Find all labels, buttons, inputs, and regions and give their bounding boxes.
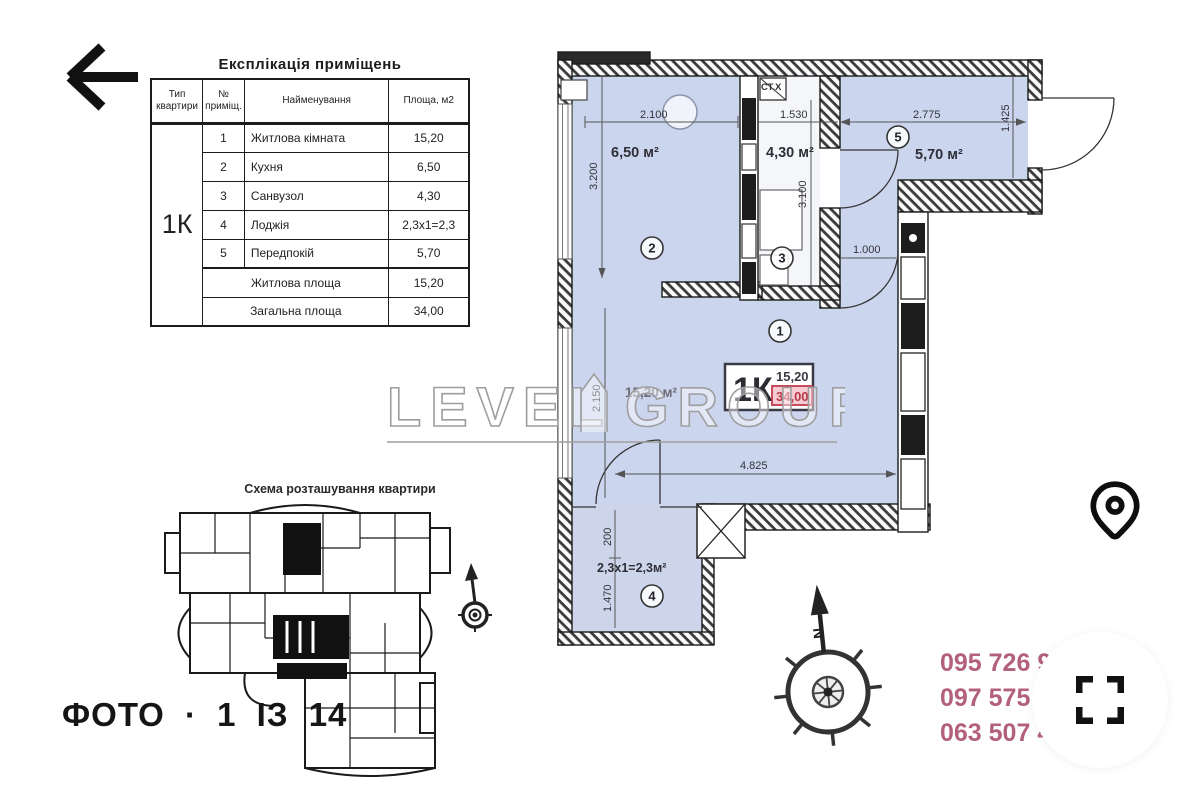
room-number-3: 3 xyxy=(778,251,785,266)
location-button[interactable] xyxy=(1058,453,1172,567)
ceiling-symbol xyxy=(663,95,697,129)
room-number-2: 2 xyxy=(648,241,655,256)
col-header-name: Найменування xyxy=(244,79,389,123)
dim-3100: 3.100 xyxy=(797,180,809,208)
back-button[interactable] xyxy=(52,36,144,118)
highlighted-unit xyxy=(273,523,349,679)
explication-table: Експлікація приміщень Тип квартири № при… xyxy=(150,56,470,327)
vent-shaft xyxy=(697,504,745,558)
north-label: N xyxy=(810,627,828,640)
table-title: Експлікація приміщень xyxy=(150,56,470,73)
col-header-type: Тип квартири xyxy=(151,79,203,123)
room-2-area: 6,50 м² xyxy=(611,145,659,161)
room-number-5: 5 xyxy=(894,130,901,145)
building-scheme xyxy=(155,503,525,783)
mini-compass-icon xyxy=(458,563,492,632)
room-4-area: 2,3х1=2,3м² xyxy=(597,561,666,575)
table-row: 1К 1 Житлова кімната 15,20 xyxy=(151,123,469,152)
dim-1425: 1.425 xyxy=(1000,104,1012,132)
apartment-stamp: 1К 15,20 34,00 xyxy=(725,364,813,410)
dim-3200: 3.200 xyxy=(588,162,600,190)
stamp-living-area: 15,20 xyxy=(776,369,809,384)
dim-2150: 2.150 xyxy=(591,384,603,412)
back-arrow-icon xyxy=(70,47,138,107)
room-number-1: 1 xyxy=(776,324,783,339)
location-pin-icon xyxy=(1084,478,1146,542)
fullscreen-brackets-icon xyxy=(1076,676,1124,724)
fullscreen-button[interactable] xyxy=(1032,632,1168,768)
dim-200: 200 xyxy=(602,528,614,546)
stamp-type: 1К xyxy=(733,371,773,409)
room-3-area: 4,30 м² xyxy=(766,145,814,161)
dim-4825: 4.825 xyxy=(740,460,768,472)
dim-1530: 1.530 xyxy=(780,109,808,121)
photo-counter: ФОТО · 1 ІЗ 14 xyxy=(62,696,347,734)
shaft-label: СТ.Х xyxy=(761,82,782,93)
photo-viewer: Експлікація приміщень Тип квартири № при… xyxy=(0,0,1200,789)
room-number-4: 4 xyxy=(648,589,656,604)
compass-rose-icon: N xyxy=(763,579,887,751)
apartment-type: 1К xyxy=(151,123,203,326)
phone-line: 095 726 9 xyxy=(940,646,1051,681)
room-5-area: 5,70 м² xyxy=(915,147,963,163)
room-1-area: 15,20 м² xyxy=(625,385,678,400)
riser-shafts xyxy=(901,223,925,509)
dim-1000: 1.000 xyxy=(853,244,881,256)
entry-door-arc xyxy=(1042,98,1114,170)
col-header-num: № приміщ. xyxy=(203,79,245,123)
scheme-title: Схема розташування квартири xyxy=(155,482,525,496)
col-header-area: Площа, м2 xyxy=(389,79,469,123)
dim-1470: 1.470 xyxy=(602,584,614,612)
dim-2100: 2.100 xyxy=(640,109,668,121)
stamp-total-area: 34,00 xyxy=(776,389,809,404)
dim-2775: 2.775 xyxy=(913,109,941,121)
